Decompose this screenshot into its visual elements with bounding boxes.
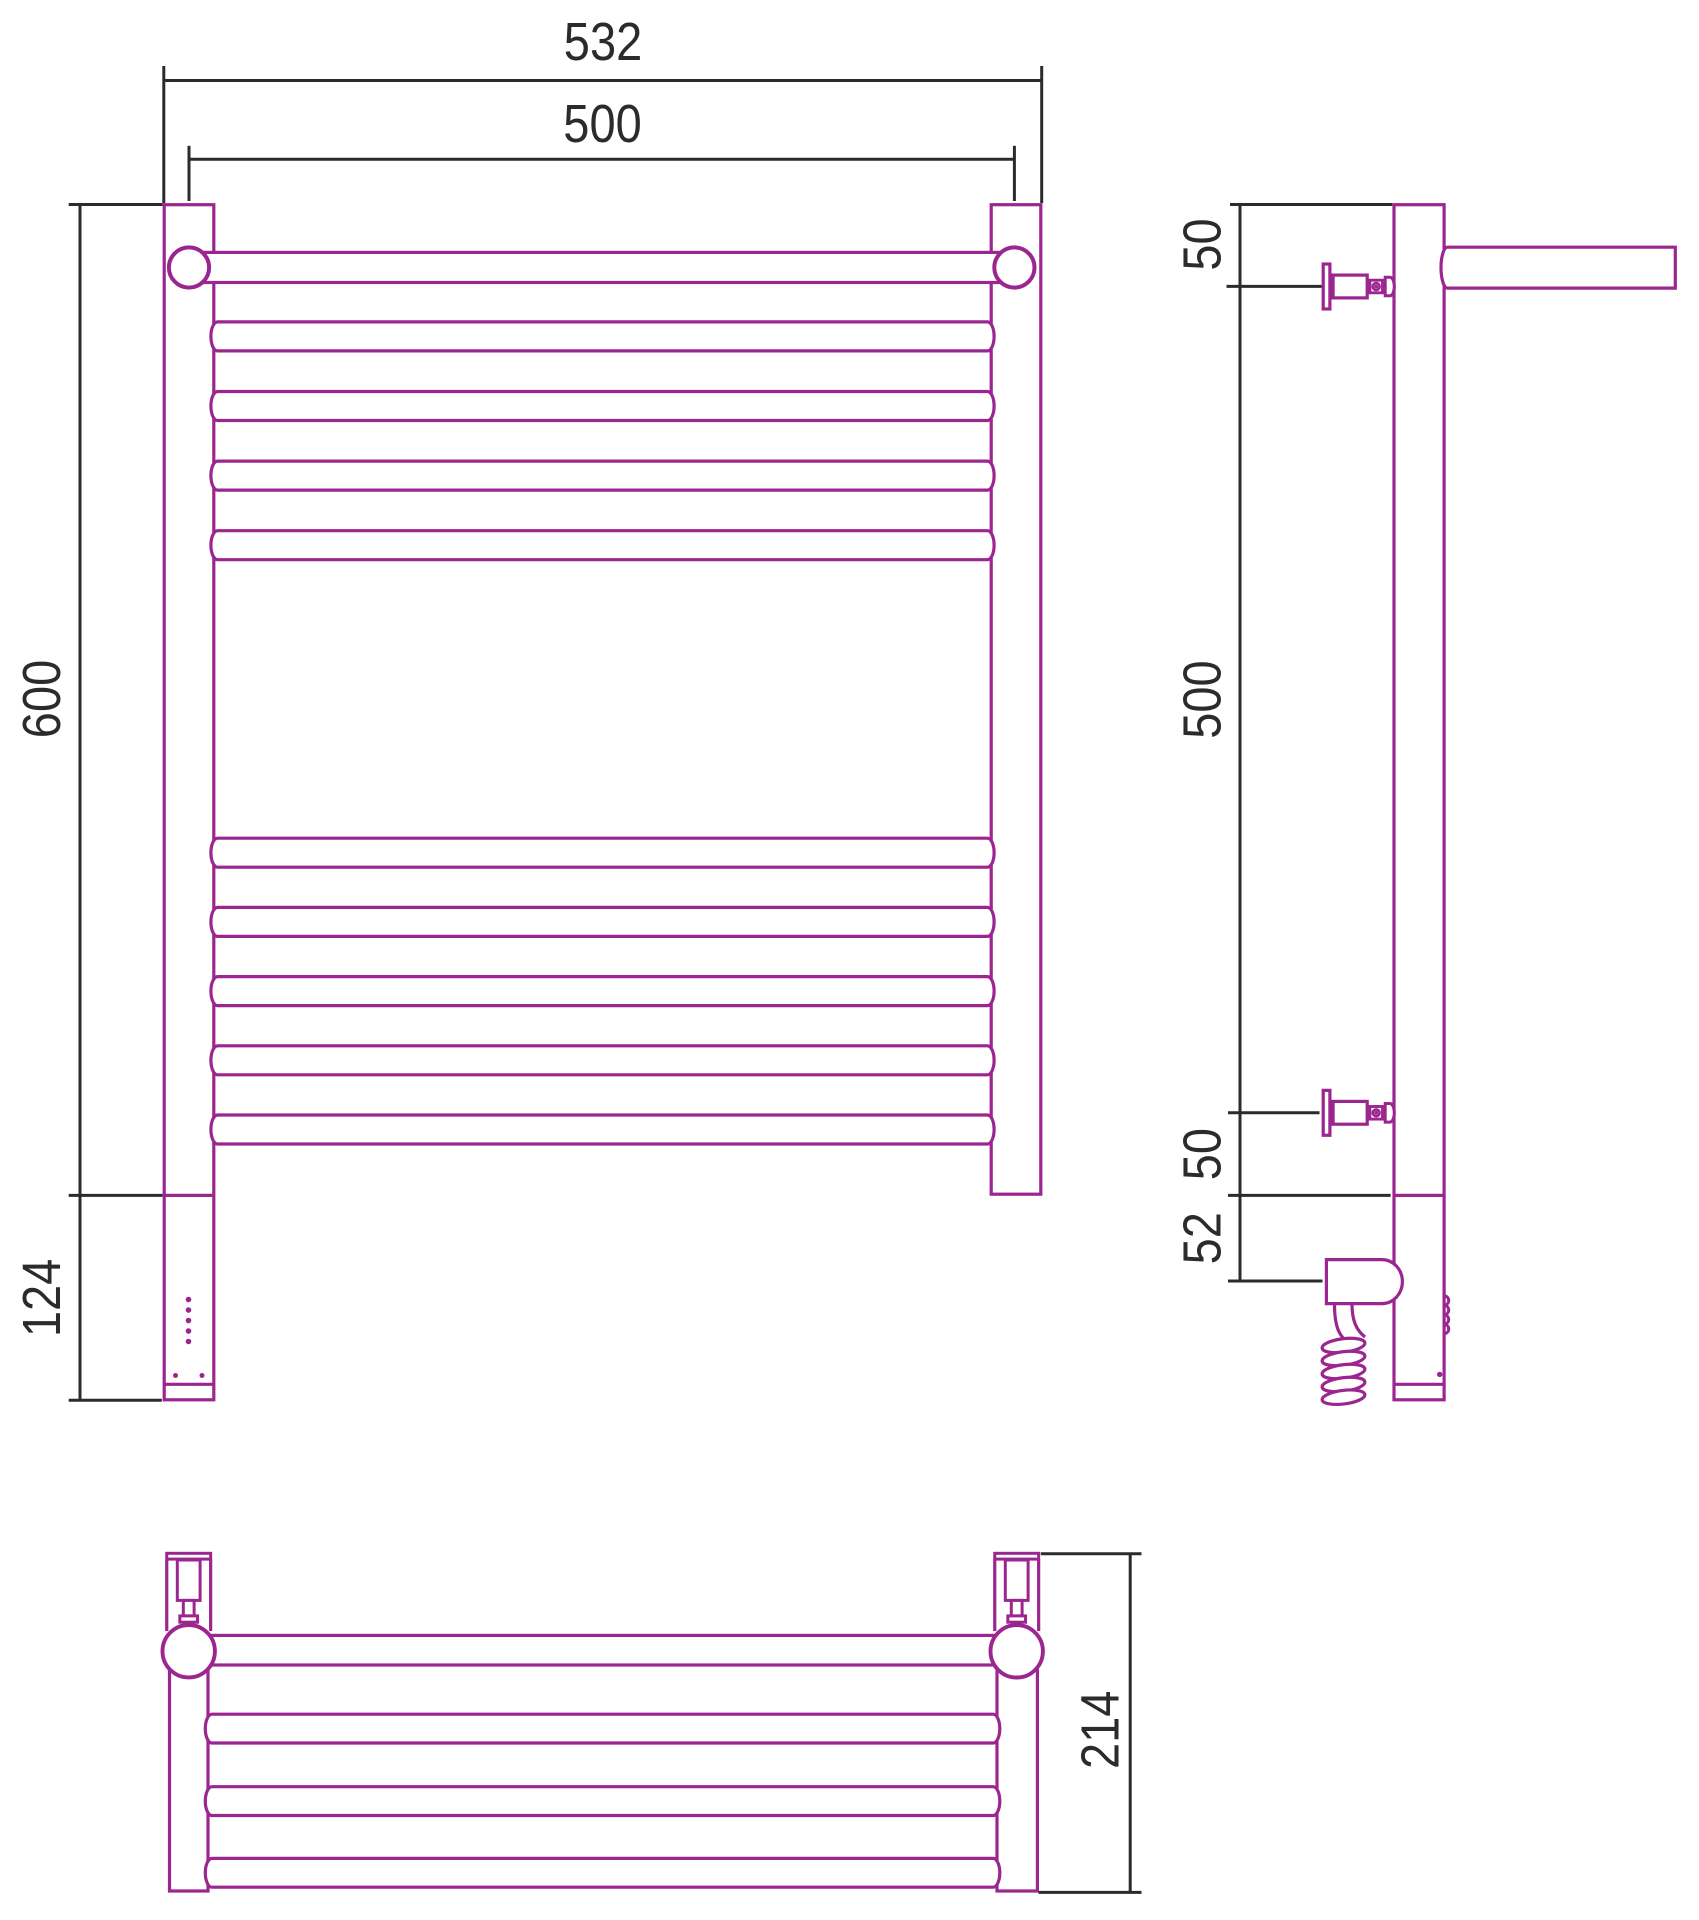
svg-text:532: 532 [564,11,642,72]
svg-text:600: 600 [11,660,72,738]
svg-text:214: 214 [1069,1691,1130,1769]
svg-text:50: 50 [1171,218,1232,270]
svg-text:500: 500 [563,93,641,154]
svg-text:500: 500 [1171,660,1232,738]
svg-text:124: 124 [11,1259,72,1337]
svg-text:52: 52 [1171,1212,1232,1264]
svg-text:50: 50 [1171,1128,1232,1180]
